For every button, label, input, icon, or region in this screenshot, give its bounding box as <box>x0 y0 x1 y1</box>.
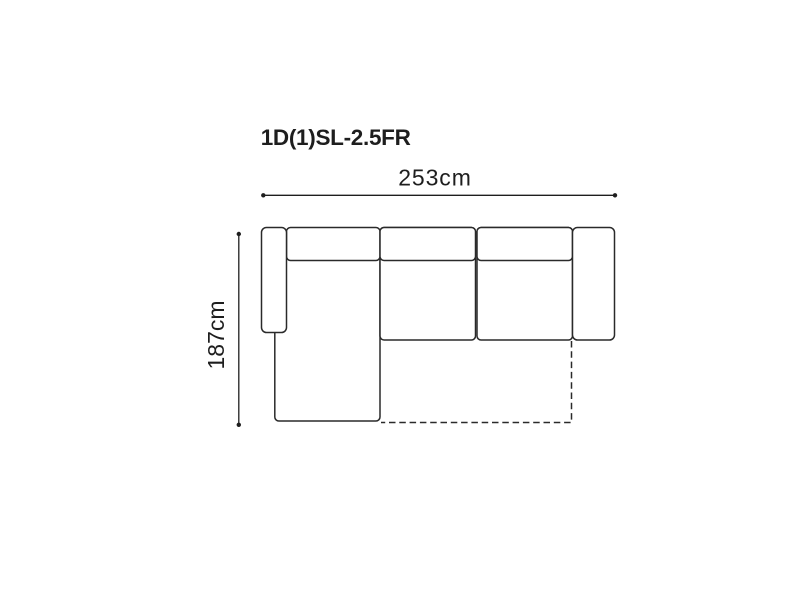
svg-text:1D(1)SL-2.5FR: 1D(1)SL-2.5FR <box>261 125 411 150</box>
svg-text:187cm: 187cm <box>203 300 229 369</box>
svg-text:253cm: 253cm <box>398 165 472 191</box>
